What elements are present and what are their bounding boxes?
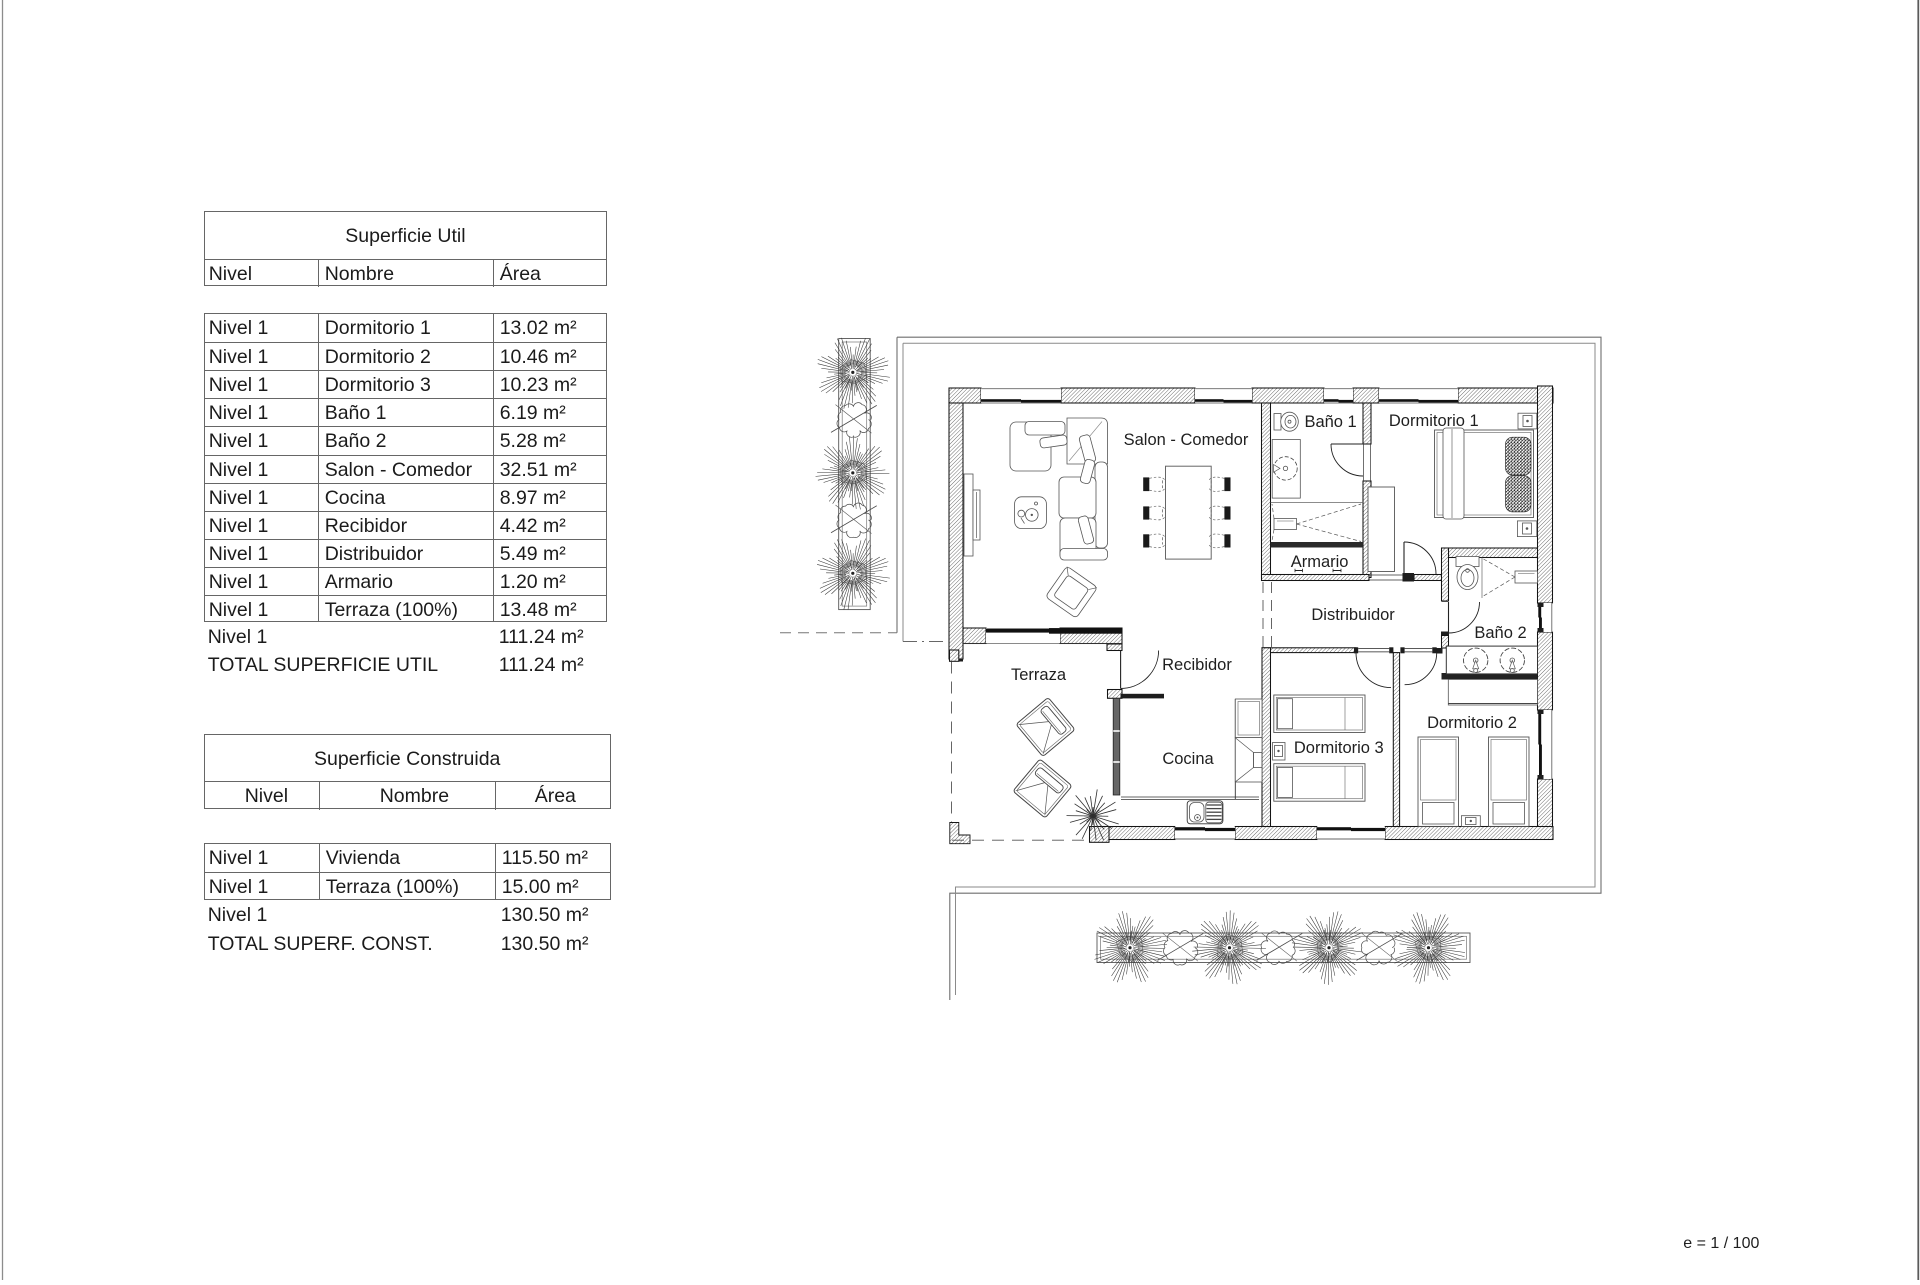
svg-text:Baño 1: Baño 1 bbox=[1304, 413, 1356, 431]
svg-text:Distribuidor: Distribuidor bbox=[1311, 606, 1395, 624]
svg-text:Salon - Comedor: Salon - Comedor bbox=[1124, 431, 1249, 449]
svg-text:Dormitorio 3: Dormitorio 3 bbox=[1294, 739, 1384, 757]
svg-text:Recibidor: Recibidor bbox=[1162, 656, 1232, 674]
svg-text:Cocina: Cocina bbox=[1162, 750, 1214, 768]
svg-text:Baño 2: Baño 2 bbox=[1474, 624, 1526, 642]
svg-text:Dormitorio 1: Dormitorio 1 bbox=[1389, 412, 1479, 430]
svg-text:Armario: Armario bbox=[1291, 553, 1349, 571]
svg-text:e = 1 / 100: e = 1 / 100 bbox=[1683, 1235, 1759, 1252]
svg-text:Dormitorio 2: Dormitorio 2 bbox=[1427, 714, 1517, 732]
svg-text:Terraza: Terraza bbox=[1011, 666, 1067, 684]
